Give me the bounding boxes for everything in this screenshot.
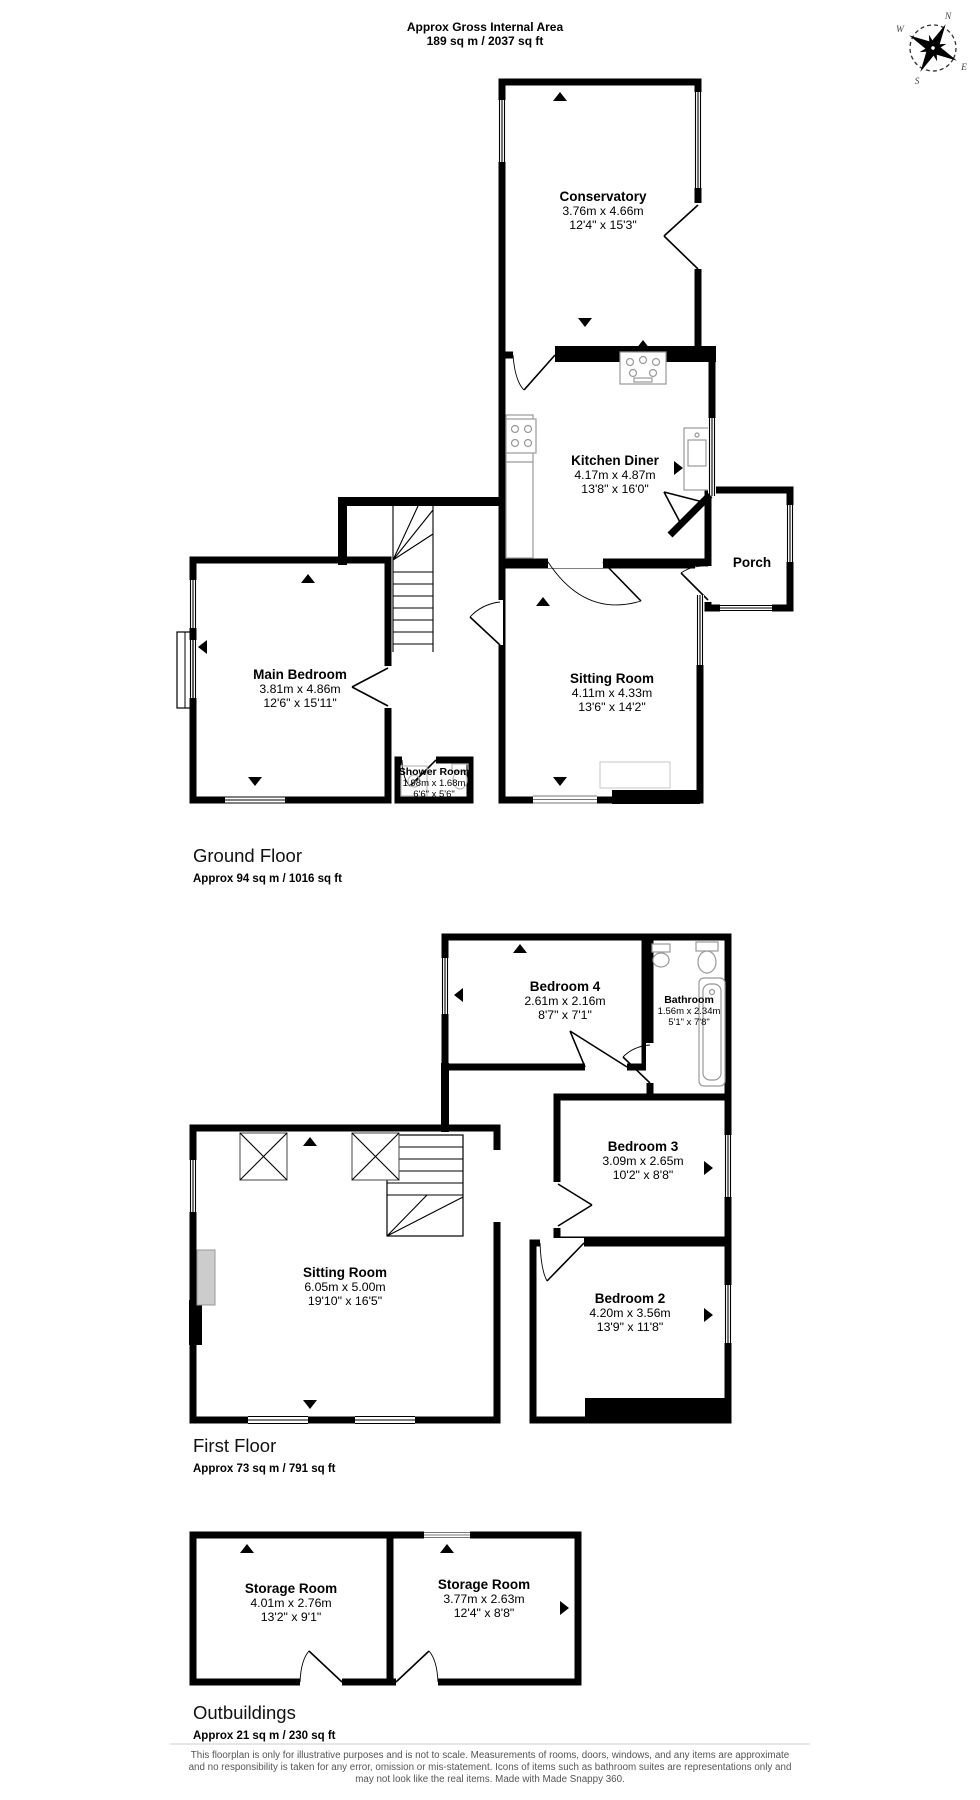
bathroom-name: Bathroom <box>664 994 714 1006</box>
bathroom-imperial: 5'1" x 7'8" <box>668 1017 710 1028</box>
window-sitting1-bottom-left <box>248 1415 308 1425</box>
conservatory-imperial: 12'4" x 15'3" <box>569 218 636 232</box>
stove-icon <box>620 352 666 384</box>
sitting-first-name: Sitting Room <box>303 1265 387 1280</box>
window-bedroom-bottom <box>225 794 285 805</box>
room-porch <box>708 490 790 608</box>
window-storage2-top <box>424 1531 470 1539</box>
compass-e-label: E <box>960 63 967 73</box>
floorplan-canvas: Approx Gross Internal Area 189 sq m / 20… <box>0 0 980 1800</box>
outbuildings-label: Outbuildings <box>193 1702 296 1723</box>
disclaimer-line1: This floorplan is only for illustrative … <box>191 1750 790 1761</box>
sitting-ground-name: Sitting Room <box>570 671 654 686</box>
bathroom-toilet-icon <box>696 942 718 973</box>
first-floor-label: First Floor <box>193 1435 276 1456</box>
first-floor-plan: Bedroom 4 2.61m x 2.16m 8'7" x 7'1" Bath… <box>189 937 732 1475</box>
door-hall-sitting <box>470 600 503 645</box>
sink-icon <box>684 428 710 490</box>
window-bedroom3-right <box>724 1135 732 1197</box>
sitting-ground-imperial: 13'6" x 14'2" <box>578 700 645 714</box>
window-porch-right <box>786 505 794 562</box>
window-sitting1-bottom-right <box>355 1415 415 1425</box>
bathroom-metric: 1.56m x 2.34m <box>658 1006 721 1017</box>
fireplace-icon <box>197 1250 215 1305</box>
ground-floor-area: Approx 94 sq m / 1016 sq ft <box>193 873 342 885</box>
bathroom-sink-icon <box>652 944 670 967</box>
bedroom2-imperial: 13'9" x 11'8" <box>597 1320 664 1334</box>
bedroom3-name: Bedroom 3 <box>608 1139 679 1154</box>
bedroom4-metric: 2.61m x 2.16m <box>524 994 605 1008</box>
kitchen-name: Kitchen Diner <box>571 453 660 468</box>
shower-name: Shower Room <box>399 766 470 778</box>
sitting-ground-metric: 4.11m x 4.33m <box>572 686 652 700</box>
sitting-first-metric: 6.05m x 5.00m <box>304 1280 385 1294</box>
bedroom4-name: Bedroom 4 <box>530 979 601 994</box>
porch-name: Porch <box>733 555 771 570</box>
compass-s-label: S <box>915 77 920 87</box>
wardrobe-x-icon <box>352 1133 399 1180</box>
window-sitting-right <box>696 595 704 665</box>
storage1-metric: 4.01m x 2.76m <box>250 1596 331 1610</box>
conservatory-name: Conservatory <box>559 189 647 204</box>
hob-icon <box>506 419 536 453</box>
stairwell-opening <box>493 1150 503 1222</box>
window-porch-bottom <box>720 604 772 612</box>
conservatory-metric: 3.76m x 4.66m <box>562 204 643 218</box>
window-sitting-bottom <box>533 794 597 805</box>
window-sitting1-left <box>189 1160 197 1212</box>
first-floor-area: Approx 73 sq m / 791 sq ft <box>193 1463 336 1475</box>
outbuildings-area: Approx 21 sq m / 230 sq ft <box>193 1730 336 1742</box>
main-bedroom-name: Main Bedroom <box>253 667 347 682</box>
disclaimer-line2: and no responsibility is taken for any e… <box>189 1762 792 1773</box>
bedroom3-metric: 3.09m x 2.65m <box>602 1154 683 1168</box>
window-bedroom4-left <box>441 958 449 1014</box>
storage1-name: Storage Room <box>245 1581 337 1596</box>
outbuildings-plan: Storage Room 4.01m x 2.76m 13'2" x 9'1" … <box>193 1531 578 1742</box>
gross-area-value: 189 sq m / 2037 sq ft <box>427 34 544 48</box>
bedroom4-imperial: 8'7" x 7'1" <box>538 1008 592 1022</box>
window-bedroom2-right <box>724 1285 732 1343</box>
compass-rose-icon: N E S W <box>896 11 969 87</box>
shower-metric: 1.98m x 1.68m <box>403 778 466 789</box>
kitchen-imperial: 13'8" x 16'0" <box>581 482 648 496</box>
ground-floor-label: Ground Floor <box>193 845 302 866</box>
bedroom3-imperial: 10'2" x 8'8" <box>613 1168 674 1182</box>
window-kitchen-right <box>708 418 716 496</box>
ground-floor-plan: Conservatory 3.76m x 4.66m 12'4" x 15'3"… <box>177 82 794 885</box>
gross-area-title: Approx Gross Internal Area <box>407 20 564 34</box>
disclaimer-section: This floorplan is only for illustrative … <box>170 1744 810 1785</box>
floorplan-page: Approx Gross Internal Area 189 sq m / 20… <box>0 0 980 1800</box>
disclaimer-line3: may not look like the real items. Made w… <box>355 1774 625 1785</box>
bedroom2-metric: 4.20m x 3.56m <box>589 1306 670 1320</box>
window-bedroom-left-upper <box>189 580 197 628</box>
main-bedroom-imperial: 12'6" x 15'11" <box>263 696 336 710</box>
main-bedroom-metric: 3.81m x 4.86m <box>259 682 340 696</box>
storage1-imperial: 13'2" x 9'1" <box>261 1610 322 1624</box>
window-conservatory-left <box>498 100 506 162</box>
sitting-first-imperial: 19'10" x 16'5" <box>308 1294 382 1308</box>
window-conservatory-right <box>694 92 702 188</box>
storage2-imperial: 12'4" x 8'8" <box>454 1606 515 1620</box>
shower-imperial: 6'6" x 5'6" <box>413 789 455 800</box>
compass-w-label: W <box>896 25 905 35</box>
compass-n-label: N <box>944 12 952 22</box>
stairs-ground-icon <box>393 506 433 652</box>
kitchen-metric: 4.17m x 4.87m <box>574 468 655 482</box>
bedroom2-name: Bedroom 2 <box>595 1291 666 1306</box>
storage2-name: Storage Room <box>438 1577 530 1592</box>
storage2-metric: 3.77m x 2.63m <box>443 1592 524 1606</box>
wardrobe-x-icon <box>240 1133 287 1180</box>
